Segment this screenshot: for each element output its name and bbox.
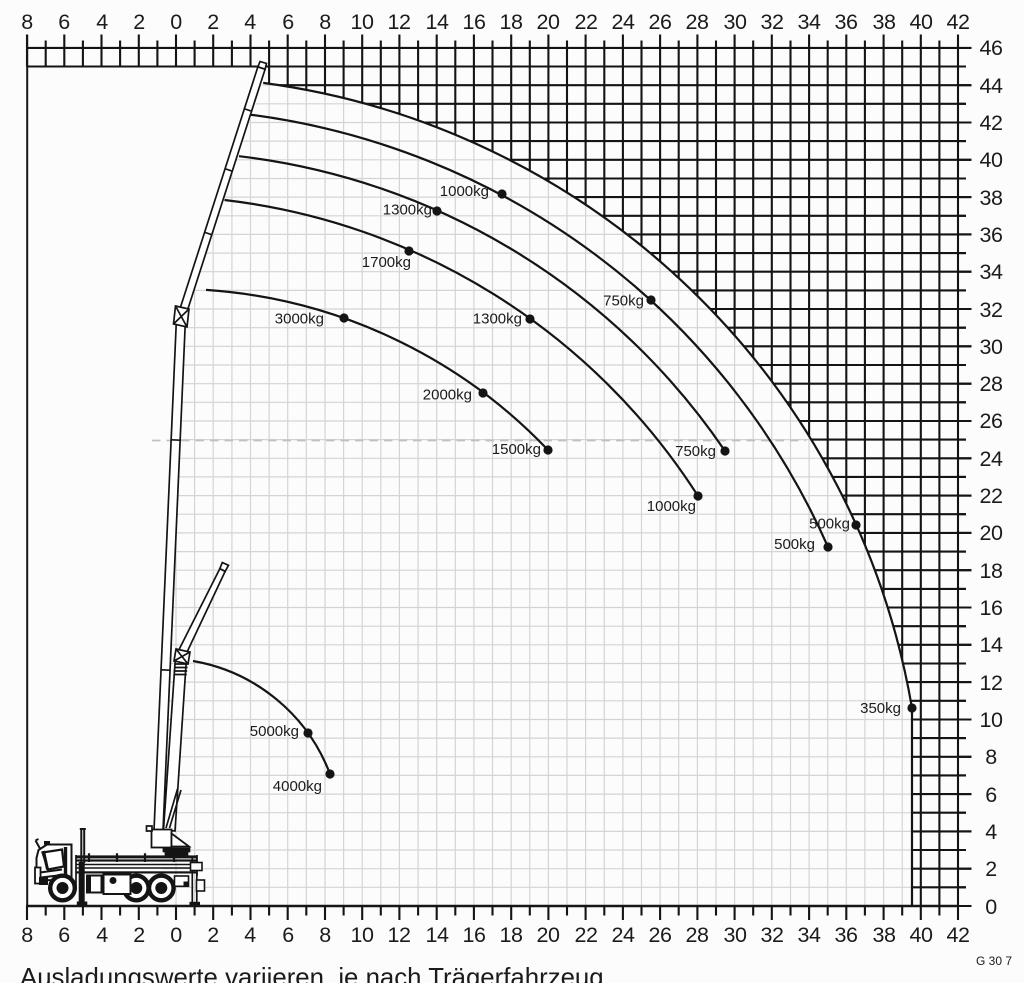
svg-text:8: 8: [21, 10, 33, 34]
svg-text:40: 40: [910, 10, 933, 34]
svg-text:8: 8: [985, 745, 997, 769]
svg-text:2000kg: 2000kg: [423, 387, 472, 404]
svg-text:3000kg: 3000kg: [275, 311, 324, 328]
svg-text:8: 8: [21, 923, 33, 947]
svg-text:32: 32: [980, 298, 1003, 322]
svg-text:8: 8: [319, 923, 331, 947]
svg-text:24: 24: [612, 10, 635, 34]
svg-text:28: 28: [686, 923, 709, 947]
svg-text:36: 36: [835, 10, 858, 34]
svg-text:4: 4: [96, 923, 108, 947]
svg-text:500kg: 500kg: [774, 536, 815, 553]
svg-text:Ausladungswerte variieren, je: Ausladungswerte variieren, je nach Träge…: [20, 964, 604, 983]
svg-text:6: 6: [985, 783, 997, 807]
svg-text:42: 42: [947, 10, 970, 34]
svg-text:16: 16: [463, 10, 486, 34]
svg-text:22: 22: [980, 484, 1003, 508]
svg-text:4: 4: [985, 820, 997, 844]
svg-text:G 30 7: G 30 7: [976, 954, 1012, 968]
svg-text:350kg: 350kg: [860, 700, 901, 717]
svg-text:6: 6: [58, 923, 70, 947]
svg-text:0: 0: [170, 923, 182, 947]
svg-text:34: 34: [798, 923, 821, 947]
svg-text:40: 40: [980, 148, 1003, 172]
svg-text:4000kg: 4000kg: [273, 778, 322, 795]
svg-text:18: 18: [980, 559, 1003, 583]
svg-text:24: 24: [612, 923, 635, 947]
svg-text:36: 36: [835, 923, 858, 947]
svg-text:2: 2: [133, 10, 144, 34]
svg-text:8: 8: [319, 10, 331, 34]
svg-text:32: 32: [761, 923, 784, 947]
svg-text:18: 18: [500, 923, 523, 947]
svg-text:34: 34: [980, 260, 1003, 284]
svg-text:38: 38: [980, 186, 1003, 210]
svg-text:44: 44: [980, 74, 1003, 98]
svg-text:14: 14: [426, 923, 449, 947]
svg-text:4: 4: [96, 10, 108, 34]
svg-text:42: 42: [947, 923, 970, 947]
svg-text:22: 22: [575, 923, 598, 947]
svg-text:1500kg: 1500kg: [492, 441, 541, 458]
svg-text:36: 36: [980, 223, 1003, 247]
svg-text:10: 10: [351, 10, 374, 34]
svg-text:46: 46: [980, 36, 1003, 60]
svg-text:18: 18: [500, 10, 523, 34]
svg-text:6: 6: [58, 10, 70, 34]
svg-text:500kg: 500kg: [809, 516, 850, 533]
svg-text:6: 6: [282, 10, 294, 34]
svg-text:14: 14: [426, 10, 449, 34]
svg-text:2: 2: [207, 923, 218, 947]
svg-text:24: 24: [980, 447, 1003, 471]
svg-text:0: 0: [985, 895, 997, 919]
svg-text:2: 2: [133, 923, 144, 947]
svg-text:1700kg: 1700kg: [362, 254, 411, 271]
svg-text:1300kg: 1300kg: [473, 311, 522, 328]
svg-text:20: 20: [537, 923, 560, 947]
svg-text:28: 28: [686, 10, 709, 34]
svg-text:12: 12: [388, 10, 411, 34]
svg-text:20: 20: [537, 10, 560, 34]
svg-text:10: 10: [351, 923, 374, 947]
svg-text:12: 12: [980, 671, 1003, 695]
svg-text:32: 32: [761, 10, 784, 34]
svg-text:16: 16: [463, 923, 486, 947]
svg-text:14: 14: [980, 633, 1003, 657]
svg-text:750kg: 750kg: [675, 443, 716, 460]
svg-text:26: 26: [649, 10, 672, 34]
svg-text:38: 38: [873, 923, 896, 947]
svg-text:4: 4: [244, 10, 256, 34]
svg-text:5000kg: 5000kg: [250, 723, 299, 740]
svg-text:30: 30: [980, 335, 1003, 359]
svg-text:2: 2: [207, 10, 218, 34]
svg-text:20: 20: [980, 521, 1003, 545]
svg-text:10: 10: [980, 708, 1003, 732]
svg-text:1000kg: 1000kg: [647, 498, 696, 515]
svg-text:28: 28: [980, 372, 1003, 396]
svg-text:22: 22: [575, 10, 598, 34]
svg-text:26: 26: [980, 409, 1003, 433]
svg-text:4: 4: [244, 923, 256, 947]
svg-text:1300kg: 1300kg: [383, 202, 432, 219]
svg-text:34: 34: [798, 10, 821, 34]
svg-text:2: 2: [985, 857, 996, 881]
svg-text:12: 12: [388, 923, 411, 947]
svg-text:40: 40: [910, 923, 933, 947]
svg-text:42: 42: [980, 111, 1003, 135]
svg-text:750kg: 750kg: [603, 293, 644, 310]
svg-text:0: 0: [170, 10, 182, 34]
svg-text:16: 16: [980, 596, 1003, 620]
svg-text:38: 38: [873, 10, 896, 34]
svg-text:30: 30: [724, 923, 747, 947]
svg-text:1000kg: 1000kg: [440, 183, 489, 200]
svg-text:30: 30: [724, 10, 747, 34]
svg-text:26: 26: [649, 923, 672, 947]
svg-text:6: 6: [282, 923, 294, 947]
